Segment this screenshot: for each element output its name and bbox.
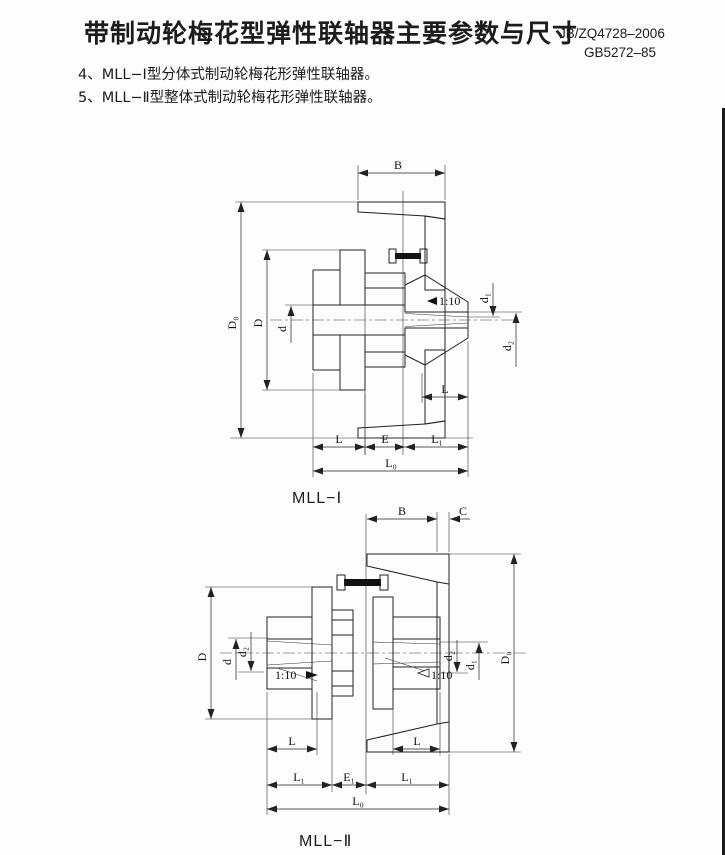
dim-B: B — [398, 504, 406, 518]
dim-L0: L₀ — [352, 794, 364, 808]
standard-number-jb: JB/ZQ4728–2006 — [559, 26, 665, 41]
flange-bolt — [337, 575, 388, 590]
dim-C: C — [459, 504, 467, 518]
dim-D0: D₀ — [498, 652, 512, 665]
dim-L1-left: L₁ — [293, 770, 305, 784]
dim-d1: d₁ — [463, 660, 477, 670]
dim-L-right: L — [413, 734, 420, 748]
right-taper-hub — [405, 275, 468, 365]
taper-callout-right: 1:10 — [418, 668, 452, 682]
note-item-4: 4、MLL−Ⅰ型分体式制动轮梅花形弹性联轴器。 — [78, 63, 379, 84]
centerlines — [270, 191, 517, 455]
dimensions: B D₀ D d d₁ d₂ L — [225, 158, 522, 477]
dim-E1: E₁ — [343, 770, 355, 784]
taper-ratio-left-label: 1:10 — [275, 668, 296, 682]
dim-D: D — [251, 318, 265, 327]
dim-B: B — [394, 158, 402, 172]
dim-L-right: L — [441, 382, 448, 396]
taper-callout: 1:10 — [427, 294, 460, 308]
dim-D: D — [195, 652, 209, 661]
mll2-drawing: 1:10 1:10 B C D d — [180, 502, 535, 836]
dim-L1-right: L₁ — [401, 770, 413, 784]
dim-d2-right: d₂ — [441, 651, 455, 661]
taper-ratio-right-label: 1:10 — [431, 668, 452, 682]
dim-d1: d₁ — [477, 293, 491, 303]
dim-L-left: L — [335, 432, 342, 446]
page-title: 带制动轮梅花型弹性联轴器主要参数与尺寸 — [84, 14, 578, 50]
document-page: 带制动轮梅花型弹性联轴器主要参数与尺寸 JB/ZQ4728–2006 GB527… — [0, 0, 725, 855]
mll1-drawing: 1:10 B D₀ D d d₁ — [215, 155, 545, 494]
dim-L0: L₀ — [385, 456, 397, 470]
taper-ratio-label: 1:10 — [439, 294, 460, 308]
standard-number-gb: GB5272–85 — [584, 45, 656, 60]
dimensions: B C D d d₂ d₂ d₁ — [195, 504, 521, 815]
dim-d: d — [220, 659, 234, 665]
dim-L-left: L — [288, 734, 295, 748]
dim-d: d — [275, 326, 289, 332]
dim-E: E — [381, 432, 388, 446]
drawing2-caption: MLL−Ⅱ — [299, 831, 352, 851]
dim-D0: D₀ — [225, 317, 239, 330]
dim-d2-left: d₂ — [235, 647, 249, 657]
note-item-5: 5、MLL−Ⅱ型整体式制动轮梅花形弹性联轴器。 — [78, 86, 382, 107]
dim-d2: d₂ — [500, 341, 514, 351]
flange-bolt — [389, 249, 427, 263]
dim-L1: L₁ — [431, 432, 443, 446]
